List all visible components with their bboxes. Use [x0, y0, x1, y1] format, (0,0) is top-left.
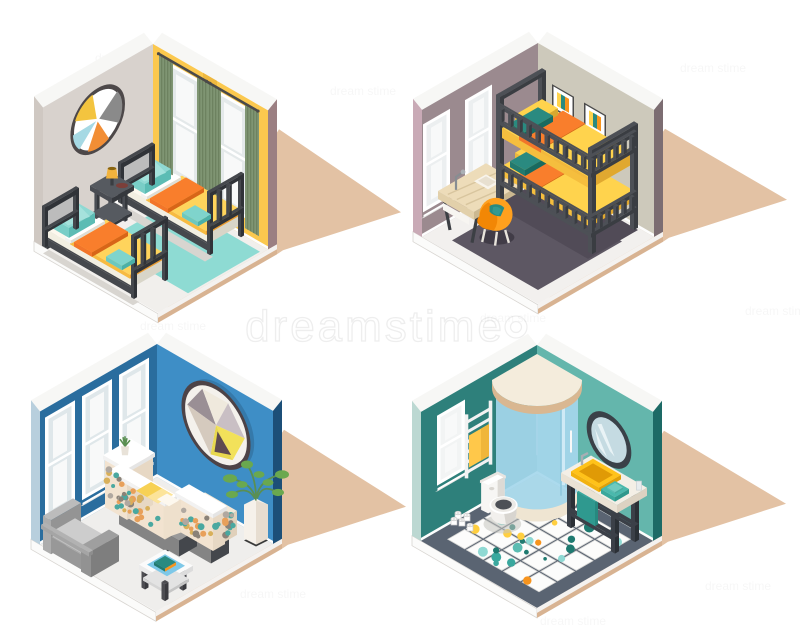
svg-text:dreamstime: dreamstime — [245, 302, 505, 351]
svg-text:dream stime: dream stime — [330, 84, 396, 98]
svg-text:dream stime: dream stime — [240, 587, 306, 601]
svg-text:dream stime: dream stime — [705, 579, 771, 593]
svg-text:dream stime: dream stime — [540, 614, 606, 628]
svg-text:dream stime: dream stime — [745, 304, 800, 318]
svg-text:dream stime: dream stime — [680, 61, 746, 75]
svg-text:dream stime: dream stime — [140, 319, 206, 333]
